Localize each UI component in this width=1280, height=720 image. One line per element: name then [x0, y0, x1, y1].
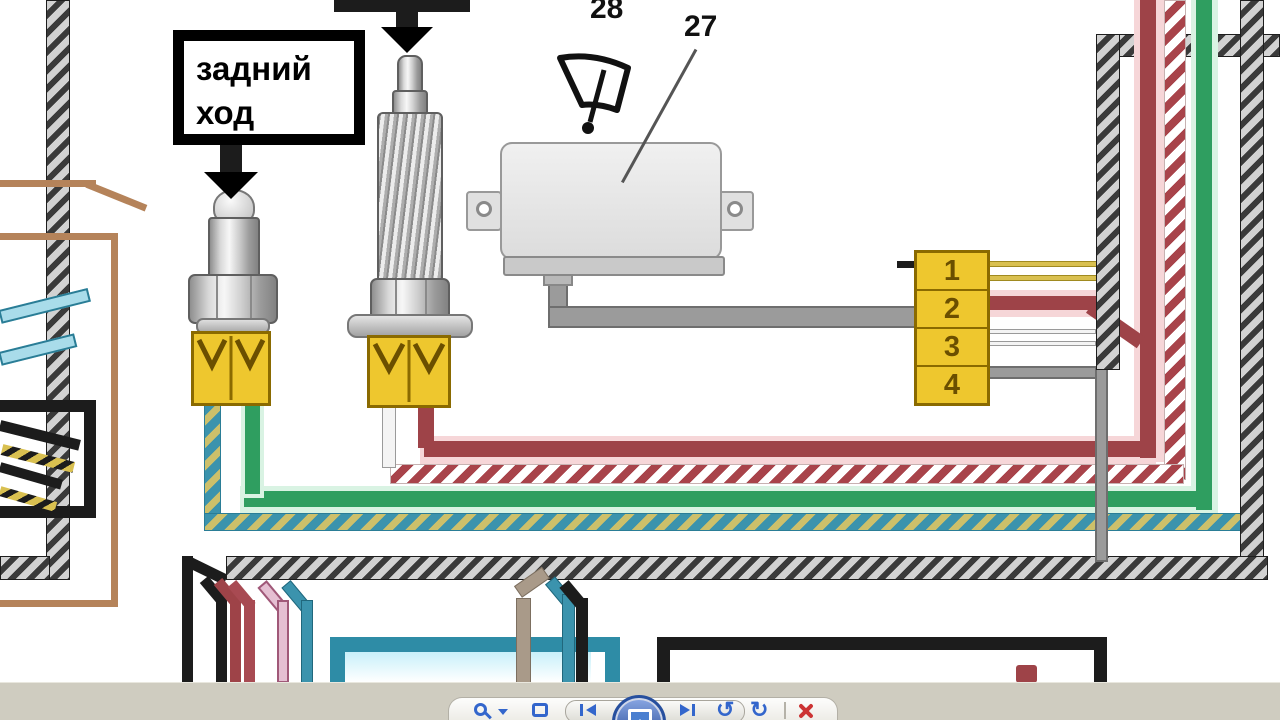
arrow1-stem [220, 145, 242, 175]
wire-teal-bundle [301, 600, 313, 683]
delete-button[interactable] [795, 701, 817, 720]
wire-gray-pin4-h [988, 366, 1108, 379]
wire-green-horizontal [244, 491, 1212, 507]
arrow1-head [204, 172, 258, 199]
wiper-icon [518, 46, 643, 141]
wire-sheath-right-vertical [1240, 0, 1264, 578]
connector-left-stub [897, 261, 914, 268]
wire-green-switch1 [245, 402, 260, 494]
wire-red-bundle2 [244, 600, 255, 683]
fit-icon [532, 703, 548, 717]
connector-pin-4: 4 [917, 367, 987, 403]
left-frame-top [0, 400, 96, 412]
previous-icon [586, 704, 596, 716]
reverse-gear-label-line2: ход [196, 91, 354, 135]
wire-white-pin3b [988, 341, 1096, 346]
wire-brown-upper [0, 180, 96, 187]
wire-brown-upper-bend [85, 181, 147, 211]
wire-white-pin3a [988, 329, 1096, 334]
switch2-connector [367, 335, 451, 408]
rotate-cw-button[interactable]: ↻ [750, 697, 768, 720]
relay-cable-horizontal [548, 306, 920, 328]
bottom-frame-top [657, 637, 1107, 650]
viewer-toolbar: ↺ ↻ [0, 682, 1280, 720]
bottom-frame-right [1094, 650, 1107, 683]
relay-tab-right-hole [727, 201, 743, 217]
teal-frame-glow [345, 652, 591, 682]
wire-green-vertical [1196, 0, 1212, 510]
rotate-ccw-button[interactable]: ↺ [716, 697, 734, 720]
connector-pin-2: 2 [917, 291, 987, 329]
connector-pin-3: 3 [917, 329, 987, 367]
wire-black-pair [576, 598, 588, 683]
wire-red-bundle1 [230, 598, 241, 683]
switch1-neck [208, 217, 260, 281]
wire-sheath-connector-vertical [1096, 34, 1120, 370]
wire-red-stub [1016, 665, 1037, 683]
wire-brown-frame-right [111, 233, 118, 607]
photo-viewer-window: 1 2 3 4 [0, 0, 1280, 720]
picture-icon [628, 709, 652, 720]
fit-to-window-button[interactable] [530, 701, 552, 720]
previous-bar [580, 704, 583, 716]
wiper-relay-flange [503, 256, 725, 276]
switch1-connector [191, 331, 271, 406]
wire-white-switch2 [382, 402, 396, 468]
switch1-nut [188, 274, 278, 324]
wire-sheath-left-bottom [0, 556, 50, 580]
wire-dark-red-vertical [1140, 0, 1156, 458]
wire-pin2 [986, 296, 1100, 310]
sheath-end-outline [182, 556, 193, 683]
arrow2-head [381, 27, 433, 53]
wiper-relay-stud [543, 274, 573, 286]
reverse-gear-label-line1: задний [196, 47, 354, 91]
bottom-frame-left [657, 650, 670, 683]
wire-brown-frame-top [0, 233, 118, 240]
previous-button[interactable] [580, 703, 606, 717]
connector-pin-1: 1 [917, 253, 987, 291]
connector-block: 1 2 3 4 [914, 250, 990, 406]
wire-pink-bundle [277, 600, 289, 683]
switch2-threaded-body [377, 112, 443, 286]
wiring-diagram-image: 1 2 3 4 [0, 0, 1280, 682]
relay-tab-left-hole [476, 201, 492, 217]
wire-teal-pair [562, 594, 575, 683]
wire-red-white-horizontal [390, 464, 1184, 484]
wire-teal-yellow-switch1 [204, 402, 221, 526]
wire-dark-red-horizontal [424, 441, 1152, 457]
wire-brown-frame-bottom [0, 600, 118, 607]
toolbar-separator [784, 702, 786, 719]
left-frame-right [84, 400, 96, 518]
wire-sheath-left-vertical [46, 0, 70, 580]
callout-28: 28 [590, 0, 623, 26]
next-button[interactable] [676, 703, 702, 717]
wire-red-white-vertical [1164, 0, 1186, 480]
teal-frame-right [605, 650, 620, 683]
switch1-terminals [194, 334, 268, 403]
reverse-gear-label: задний ход [173, 30, 365, 145]
teal-frame-left [330, 650, 345, 683]
switch2-terminals [370, 338, 448, 405]
zoom-button[interactable] [470, 701, 514, 720]
switch2-tip [397, 55, 423, 95]
next-icon [680, 704, 690, 716]
chevron-down-icon [498, 709, 508, 715]
wire-taupe [516, 598, 531, 683]
wire-sheath-main-horizontal [226, 556, 1268, 580]
callout-27: 27 [684, 10, 717, 44]
wire-yellow-pin1b [988, 275, 1098, 281]
next-bar [692, 704, 695, 716]
magnifier-handle [484, 712, 492, 720]
wire-yellow-pin1a [988, 261, 1098, 267]
wire-black-bundle [216, 596, 227, 683]
wire-gray-pin4-v [1095, 366, 1108, 562]
wiper-relay-body [500, 142, 722, 260]
